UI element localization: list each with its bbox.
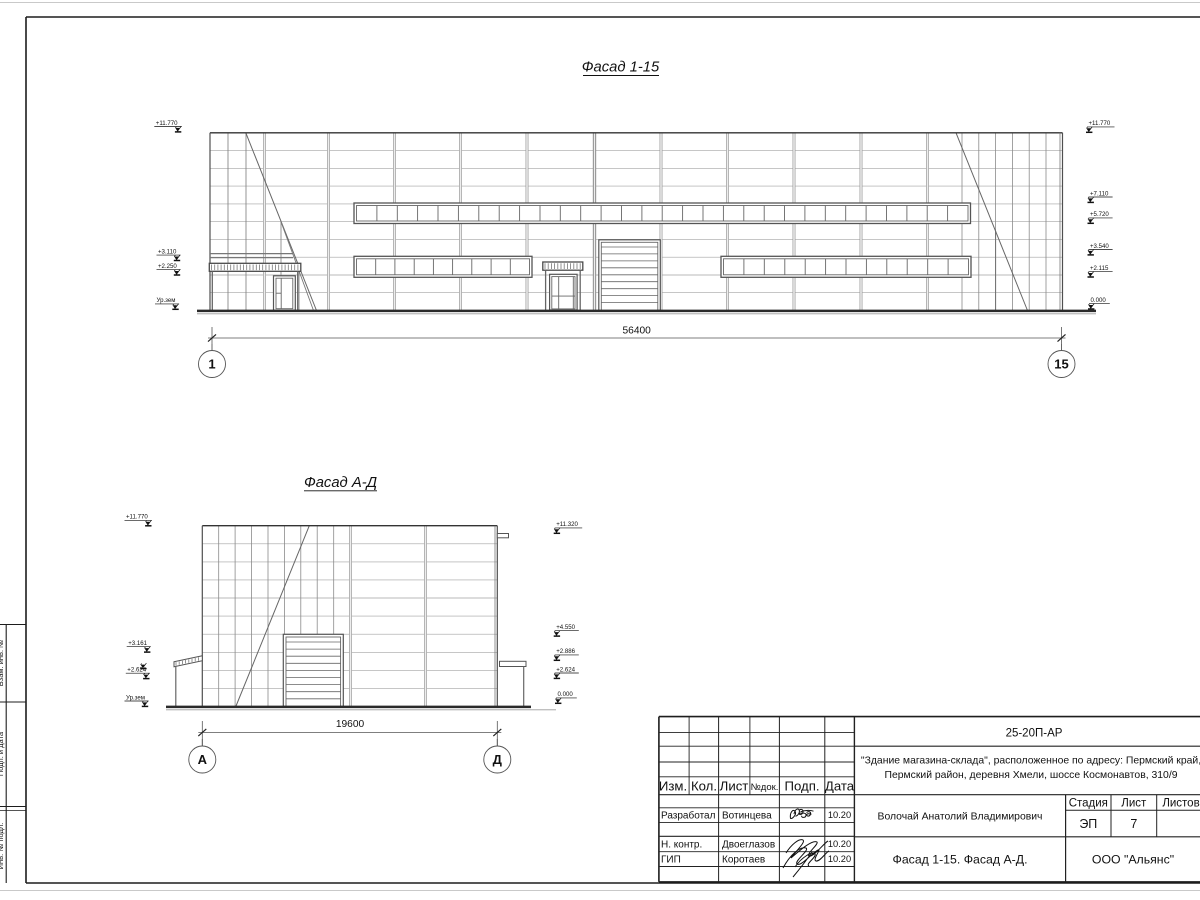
- svg-text:Н. контр.: Н. контр.: [661, 840, 702, 851]
- svg-text:0.000: 0.000: [1091, 297, 1107, 304]
- svg-text:"Здание магазина-склада", расп: "Здание магазина-склада", расположенное …: [861, 756, 1200, 767]
- svg-text:Пермский район, деревня Хмели,: Пермский район, деревня Хмели, шоссе Кос…: [884, 770, 1177, 781]
- svg-text:+2.886: +2.886: [556, 648, 575, 655]
- svg-text:7: 7: [1130, 817, 1137, 831]
- svg-text:Подп.: Подп.: [784, 779, 819, 794]
- svg-text:+7.110: +7.110: [1090, 190, 1109, 197]
- svg-text:Лист: Лист: [720, 779, 749, 794]
- svg-text:ГИП: ГИП: [661, 855, 681, 866]
- svg-text:15: 15: [1054, 357, 1068, 372]
- svg-text:ЭП: ЭП: [1079, 817, 1097, 831]
- svg-text:Ур.зем: Ур.зем: [157, 297, 176, 304]
- svg-text:+2.115: +2.115: [1090, 265, 1109, 272]
- svg-text:Листов: Листов: [1162, 797, 1199, 809]
- svg-text:Изм.: Изм.: [659, 779, 687, 794]
- svg-text:0.000: 0.000: [558, 691, 574, 698]
- svg-text:10.20: 10.20: [828, 810, 851, 820]
- svg-text:+11.770: +11.770: [156, 120, 178, 127]
- svg-text:Разработал: Разработал: [661, 809, 716, 821]
- svg-text:+11.770: +11.770: [1089, 120, 1111, 127]
- svg-text:А: А: [198, 752, 208, 767]
- svg-text:Инв. № подл.: Инв. № подл.: [0, 823, 5, 870]
- svg-text:Фасад 1-15. Фасад А-Д.: Фасад 1-15. Фасад А-Д.: [892, 853, 1027, 867]
- svg-text:Вотинцева: Вотинцева: [722, 810, 772, 821]
- svg-text:Фасад 1-15: Фасад 1-15: [582, 60, 660, 76]
- svg-text:№док.: №док.: [751, 782, 779, 793]
- svg-text:+5.720: +5.720: [1090, 211, 1109, 218]
- svg-text:56400: 56400: [623, 325, 652, 336]
- svg-text:+2.250: +2.250: [158, 263, 177, 270]
- svg-text:+2.624: +2.624: [127, 667, 146, 674]
- svg-text:Взам. инв. №: Взам. инв. №: [0, 640, 5, 686]
- svg-text:1: 1: [208, 357, 215, 372]
- svg-text:+3.540: +3.540: [1090, 243, 1109, 250]
- svg-text:Волочай Анатолий Владимирович: Волочай Анатолий Владимирович: [878, 812, 1043, 823]
- svg-text:25-20П-АР: 25-20П-АР: [1006, 728, 1063, 740]
- svg-text:10.20: 10.20: [828, 839, 851, 849]
- svg-text:Двоеглазов: Двоеглазов: [722, 840, 775, 851]
- svg-text:10.20: 10.20: [828, 854, 851, 864]
- svg-text:+3.110: +3.110: [158, 248, 177, 255]
- svg-text:Лист: Лист: [1121, 797, 1147, 809]
- svg-text:+11.770: +11.770: [126, 514, 148, 521]
- svg-text:ООО "Альянс": ООО "Альянс": [1092, 853, 1174, 867]
- svg-text:Коротаев: Коротаев: [722, 855, 765, 866]
- svg-text:+4.550: +4.550: [556, 624, 575, 631]
- svg-text:Д: Д: [493, 752, 503, 767]
- svg-text:19600: 19600: [336, 719, 365, 730]
- svg-text:Фасад А-Д: Фасад А-Д: [304, 475, 377, 491]
- svg-text:Кол.: Кол.: [691, 779, 717, 794]
- svg-text:+3.161: +3.161: [128, 640, 147, 647]
- svg-text:Дата: Дата: [825, 779, 855, 794]
- svg-text:Стадия: Стадия: [1069, 797, 1108, 809]
- svg-text:Ур.зем: Ур.зем: [126, 694, 145, 701]
- svg-text:+2.624: +2.624: [556, 666, 575, 673]
- svg-text:+11.320: +11.320: [556, 521, 578, 528]
- svg-text:Подп. и дата: Подп. и дата: [0, 731, 5, 776]
